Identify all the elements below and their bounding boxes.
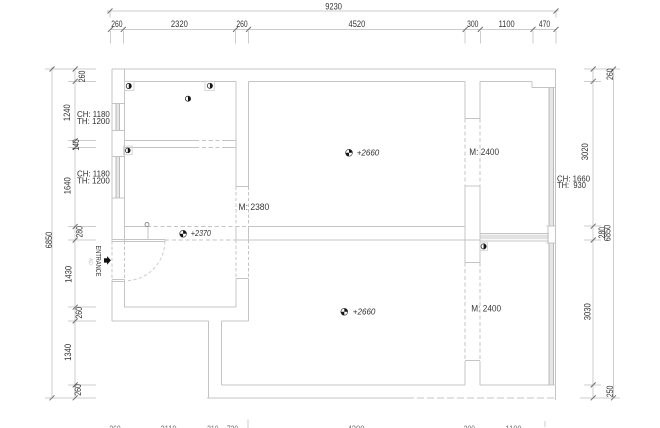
svg-text:6850: 6850 xyxy=(44,232,54,249)
svg-text:280: 280 xyxy=(75,226,85,238)
svg-text:260: 260 xyxy=(109,424,120,428)
svg-text:M: 2400: M: 2400 xyxy=(471,304,501,314)
svg-text:AD: AD xyxy=(87,258,93,265)
svg-text:+2370: +2370 xyxy=(191,229,211,238)
svg-text:3030: 3030 xyxy=(583,303,593,320)
svg-text:TH: 1200: TH: 1200 xyxy=(77,116,110,126)
svg-text:3020: 3020 xyxy=(580,143,590,160)
svg-text:ENTRANCE: ENTRANCE xyxy=(94,246,101,277)
svg-text:M: 2380: M: 2380 xyxy=(239,202,270,212)
svg-text:1100: 1100 xyxy=(499,19,515,29)
svg-text:9230: 9230 xyxy=(325,1,342,11)
svg-text:4520: 4520 xyxy=(349,19,366,29)
svg-text:140: 140 xyxy=(71,139,81,151)
svg-text:300: 300 xyxy=(464,424,475,428)
svg-text:1430: 1430 xyxy=(63,266,73,283)
svg-text:470: 470 xyxy=(539,19,550,29)
svg-text:M: 2400: M: 2400 xyxy=(469,147,499,157)
svg-text:260: 260 xyxy=(74,307,84,319)
svg-text:1340: 1340 xyxy=(63,344,73,361)
svg-text:260: 260 xyxy=(77,71,87,83)
svg-text:260: 260 xyxy=(605,68,615,80)
svg-text:4300: 4300 xyxy=(348,424,365,428)
svg-text:1240: 1240 xyxy=(62,104,72,121)
svg-text:6850: 6850 xyxy=(603,225,613,242)
svg-text:260: 260 xyxy=(73,384,83,396)
svg-text:TH: 1200: TH: 1200 xyxy=(77,176,110,186)
svg-text:210: 210 xyxy=(207,424,218,428)
svg-text:1100: 1100 xyxy=(506,424,522,428)
svg-text:+2660: +2660 xyxy=(353,308,376,317)
svg-text:260: 260 xyxy=(236,19,247,29)
svg-text:1640: 1640 xyxy=(62,177,72,194)
svg-text:300: 300 xyxy=(467,19,478,29)
svg-text:+2660: +2660 xyxy=(357,149,380,158)
svg-text:2110: 2110 xyxy=(161,424,177,428)
svg-text:2320: 2320 xyxy=(171,19,188,29)
svg-text:250: 250 xyxy=(605,386,615,398)
svg-text:730: 730 xyxy=(227,424,238,428)
svg-text:TH: 930: TH: 930 xyxy=(557,180,586,190)
svg-text:260: 260 xyxy=(111,19,122,29)
